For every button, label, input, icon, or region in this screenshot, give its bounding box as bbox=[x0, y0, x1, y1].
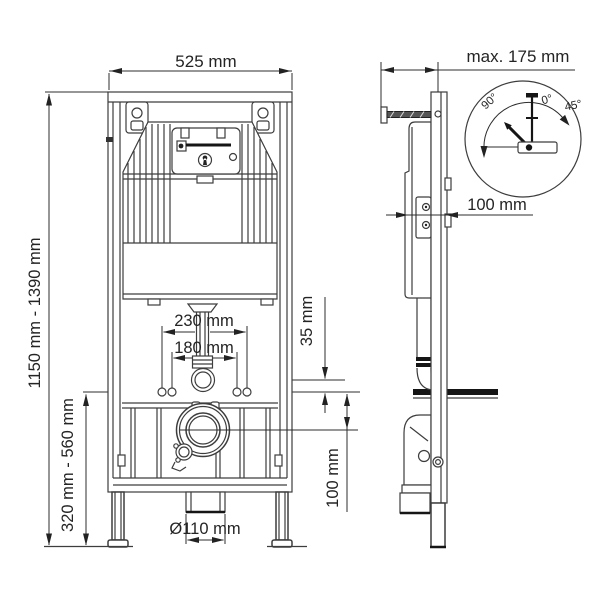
rail-bolt bbox=[433, 457, 443, 467]
dim-height-range-label: 1150 mm - 1390 mm bbox=[26, 238, 44, 389]
cistern bbox=[123, 122, 277, 305]
outlet-duct bbox=[186, 492, 225, 512]
angle-0-label: 0° bbox=[540, 93, 554, 108]
panel-screw bbox=[230, 154, 237, 161]
pipe-coupling bbox=[193, 356, 213, 368]
cistern-side-profile bbox=[405, 122, 431, 298]
dim-drain-offset-label: 100 mm bbox=[324, 448, 342, 508]
rail-marking bbox=[106, 137, 113, 142]
angle-90-label: 90° bbox=[480, 91, 501, 112]
side-view bbox=[381, 92, 498, 547]
dim-depth-label: 100 mm bbox=[467, 196, 527, 214]
side-foot bbox=[430, 503, 446, 547]
wc-frame-dimension-drawing: 525 mm 1150 mm - 1390 mm 320 mm - 560 mm… bbox=[0, 0, 600, 600]
drain-flange-side bbox=[402, 485, 433, 493]
side-rail bbox=[431, 92, 447, 503]
rail-clip-back-1 bbox=[445, 178, 451, 190]
bracket-pin-0 bbox=[526, 93, 538, 143]
dim-fixing-height-label: 320 mm - 560 mm bbox=[59, 398, 77, 532]
support-bracket-plate bbox=[518, 142, 557, 153]
dim-inner-bolt-label: 180 mm bbox=[174, 339, 234, 357]
rail-clip-back-2 bbox=[445, 214, 451, 227]
panel-bottom-tab bbox=[197, 176, 213, 183]
dim-flush-offset-label: 35 mm bbox=[298, 296, 316, 346]
cistern-foot-left bbox=[148, 299, 160, 305]
panel-clip-right bbox=[217, 128, 225, 138]
rail-hole bbox=[435, 111, 441, 117]
fixing-bar bbox=[413, 389, 498, 395]
outlet-duct-side bbox=[400, 493, 430, 513]
drain-block-side bbox=[400, 415, 433, 513]
side-panel bbox=[416, 197, 431, 238]
wall-anchor-rod bbox=[381, 107, 431, 123]
bracket-pivot bbox=[526, 144, 532, 150]
foot-right bbox=[272, 492, 292, 547]
dim-wall-distance-label: max. 175 mm bbox=[467, 47, 570, 66]
dim-outer-bolt-label: 230 mm bbox=[174, 312, 234, 330]
rotation-detail: 90° 0° 45° bbox=[465, 81, 583, 197]
technical-drawing-canvas: 525 mm 1150 mm - 1390 mm 320 mm - 560 mm… bbox=[0, 0, 600, 600]
cistern-foot-right bbox=[261, 299, 273, 305]
dim-drain-diameter-label: Ø110 mm bbox=[169, 520, 240, 538]
rail-clip-right bbox=[275, 455, 282, 466]
dim-front-width-label: 525 mm bbox=[175, 52, 236, 71]
foot-left bbox=[108, 492, 128, 547]
panel-clip-left bbox=[181, 128, 189, 138]
rail-clip-left bbox=[118, 455, 125, 466]
angle-45-label: 45° bbox=[564, 98, 584, 113]
